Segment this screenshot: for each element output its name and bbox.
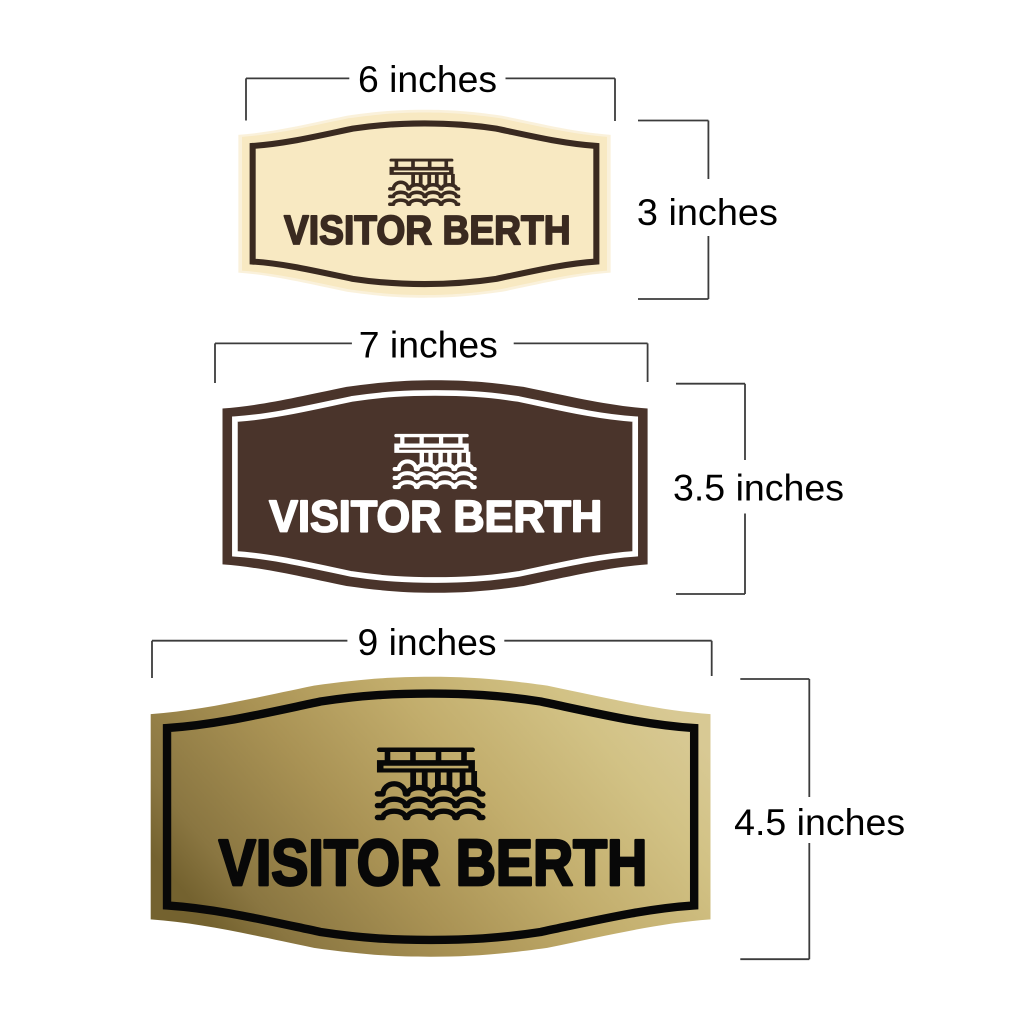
svg-text:3 inches: 3 inches bbox=[637, 192, 778, 233]
svg-text:9 inches: 9 inches bbox=[358, 622, 497, 663]
svg-text:VISITOR BERTH: VISITOR BERTH bbox=[219, 826, 648, 899]
svg-text:VISITOR BERTH: VISITOR BERTH bbox=[284, 208, 571, 253]
svg-text:7 inches: 7 inches bbox=[359, 325, 498, 366]
svg-text:VISITOR BERTH: VISITOR BERTH bbox=[269, 492, 602, 541]
svg-text:3.5 inches: 3.5 inches bbox=[673, 468, 844, 509]
svg-text:4.5 inches: 4.5 inches bbox=[734, 802, 905, 843]
svg-text:6 inches: 6 inches bbox=[358, 59, 497, 100]
